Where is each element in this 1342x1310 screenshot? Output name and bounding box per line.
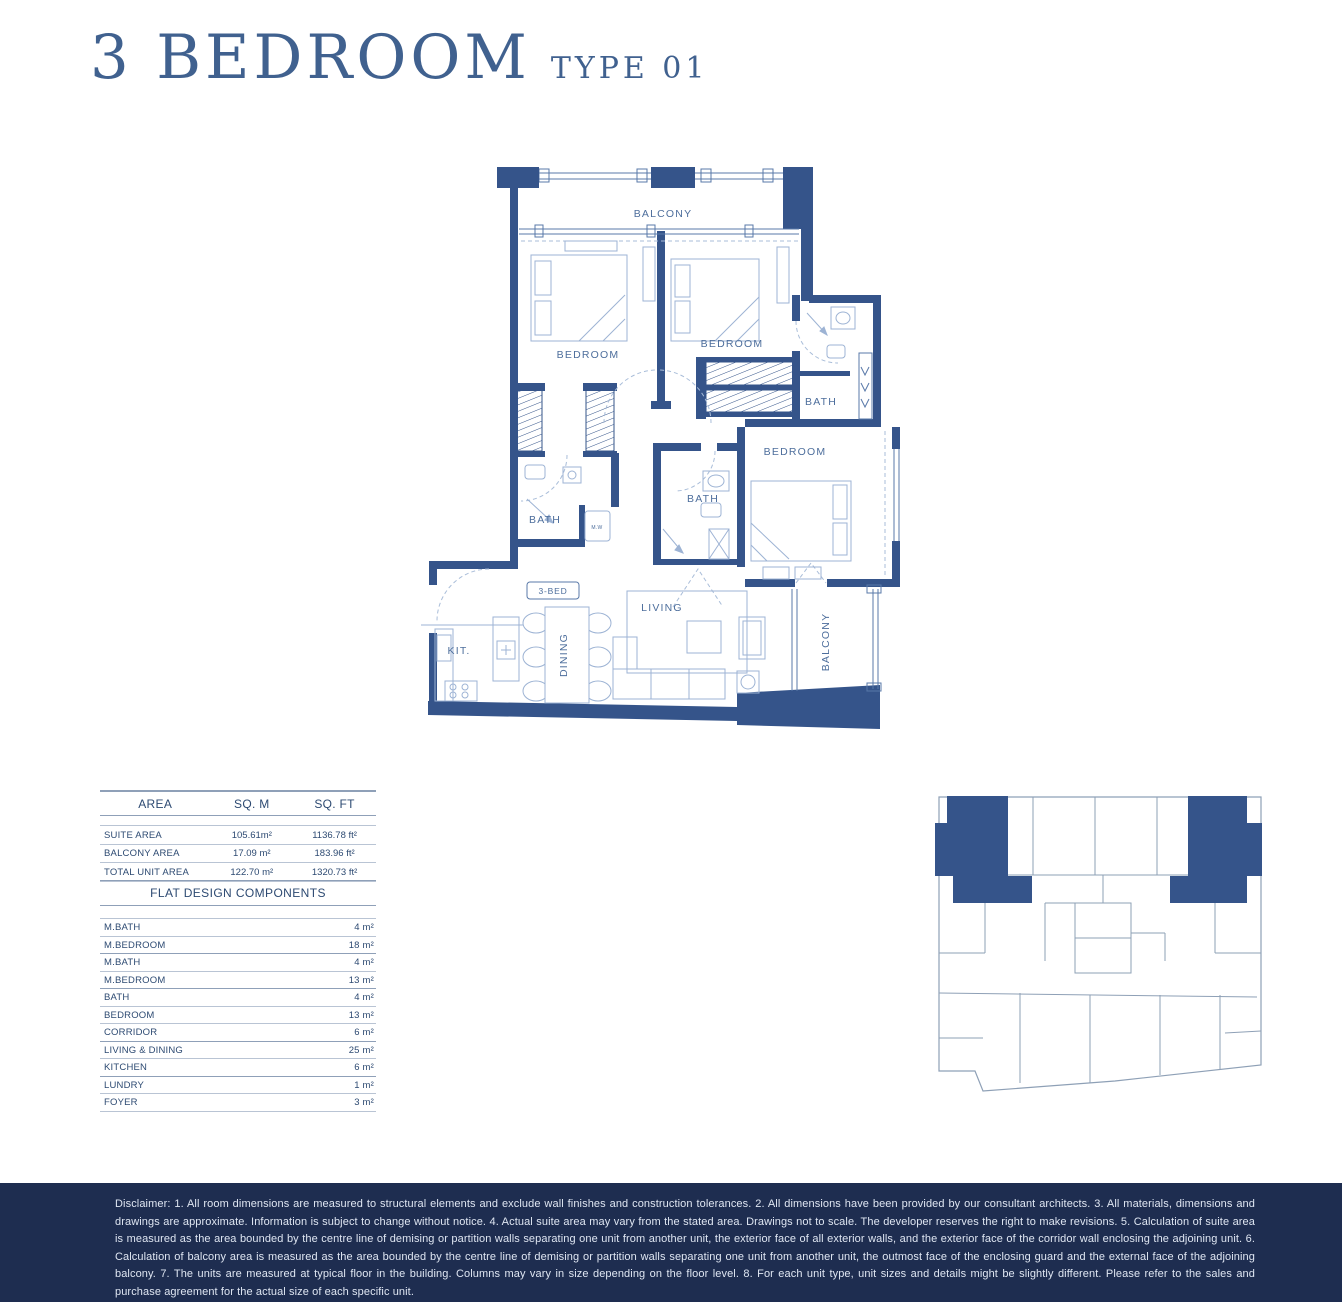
component-value: 18 m²: [349, 940, 374, 951]
component-label: CORRIDOR: [104, 1027, 157, 1038]
label-washer: M.W: [591, 525, 602, 531]
component-value: 13 m²: [349, 975, 374, 986]
key-plan: [925, 783, 1275, 1101]
unit-type-title: 3 BEDROOM: [90, 22, 531, 93]
unit-badge: 3-BED: [527, 582, 579, 599]
label-living: LIVING: [641, 602, 683, 614]
component-value: 25 m²: [349, 1045, 374, 1056]
components-table-title: FLAT DESIGN COMPONENTS: [100, 880, 376, 906]
component-row: M.BEDROOM18 m²: [100, 937, 376, 955]
component-label: LIVING & DINING: [104, 1045, 183, 1056]
page-title: 3 BEDROOMTYPE 01: [90, 22, 708, 93]
label-balcony-right: BALCONY: [820, 613, 832, 672]
component-value: 4 m²: [354, 922, 374, 933]
area-header-col2: SQ. M: [210, 797, 293, 811]
component-label: M.BEDROOM: [104, 940, 165, 951]
component-row: CORRIDOR6 m²: [100, 1024, 376, 1042]
label-balcony-top: BALCONY: [634, 208, 693, 220]
area-table: AREA SQ. M SQ. FT SUITE AREA105.61m²1136…: [100, 790, 376, 882]
component-value: 4 m²: [354, 992, 374, 1003]
component-row: BATH4 m²: [100, 989, 376, 1007]
component-row: KITCHEN6 m²: [100, 1059, 376, 1077]
area-table-cell: 17.09 m²: [210, 848, 293, 859]
area-table-rows: SUITE AREA105.61m²1136.78 ft²BALCONY ARE…: [100, 825, 376, 882]
component-row: M.BATH4 m²: [100, 919, 376, 937]
component-row: BEDROOM13 m²: [100, 1007, 376, 1025]
area-table-cell: TOTAL UNIT AREA: [100, 867, 210, 878]
floor-plan-page: 3 BEDROOMTYPE 01: [0, 0, 1342, 1310]
component-row: LIVING & DINING25 m²: [100, 1042, 376, 1060]
label-bath-left: BATH: [529, 514, 561, 526]
area-header-col1: AREA: [100, 797, 210, 811]
component-row: LUNDRY1 m²: [100, 1077, 376, 1095]
area-table-row: BALCONY AREA17.09 m²183.96 ft²: [100, 845, 376, 864]
label-bath-top-right: BATH: [805, 396, 837, 408]
component-value: 1 m²: [354, 1080, 374, 1091]
label-bedroom-right: BEDROOM: [764, 446, 827, 458]
unit-badge-label: 3-BED: [538, 586, 567, 596]
component-label: LUNDRY: [104, 1080, 144, 1091]
disclaimer-text: Disclaimer: 1. All room dimensions are m…: [115, 1196, 1255, 1301]
component-value: 3 m²: [354, 1097, 374, 1108]
component-label: M.BATH: [104, 922, 140, 933]
area-table-row: SUITE AREA105.61m²1136.78 ft²: [100, 826, 376, 845]
floor-plan-drawing: BALCONY BEDROOM BEDROOM BATH BEDROOM BAT…: [415, 155, 905, 735]
area-header-col3: SQ. FT: [293, 797, 376, 811]
label-kitchen: KIT.: [448, 645, 471, 657]
area-table-cell: BALCONY AREA: [100, 848, 210, 859]
area-table-header: AREA SQ. M SQ. FT: [100, 790, 376, 816]
components-table: FLAT DESIGN COMPONENTS M.BATH4 m²M.BEDRO…: [100, 880, 376, 1112]
component-label: KITCHEN: [104, 1062, 147, 1073]
component-value: 4 m²: [354, 957, 374, 968]
area-table-cell: 105.61m²: [210, 830, 293, 841]
component-label: M.BEDROOM: [104, 975, 165, 986]
component-value: 6 m²: [354, 1027, 374, 1038]
component-label: M.BATH: [104, 957, 140, 968]
unit-type-subtitle: TYPE 01: [551, 51, 709, 86]
label-bedroom-mid: BEDROOM: [701, 338, 764, 350]
component-row: FOYER3 m²: [100, 1094, 376, 1112]
area-table-cell: 183.96 ft²: [293, 848, 376, 859]
component-label: FOYER: [104, 1097, 138, 1108]
component-row: M.BEDROOM13 m²: [100, 972, 376, 990]
components-table-rows: M.BATH4 m²M.BEDROOM18 m²M.BATH4 m²M.BEDR…: [100, 918, 376, 1112]
area-table-cell: SUITE AREA: [100, 830, 210, 841]
area-table-cell: 1136.78 ft²: [293, 830, 376, 841]
disclaimer-band: Disclaimer: 1. All room dimensions are m…: [0, 1183, 1342, 1302]
area-table-row: TOTAL UNIT AREA122.70 m²1320.73 ft²: [100, 863, 376, 882]
furniture: [421, 241, 855, 703]
area-table-cell: 1320.73 ft²: [293, 867, 376, 878]
component-label: BEDROOM: [104, 1010, 155, 1021]
label-bedroom-left: BEDROOM: [557, 349, 620, 361]
area-table-cell: 122.70 m²: [210, 867, 293, 878]
component-value: 13 m²: [349, 1010, 374, 1021]
component-value: 6 m²: [354, 1062, 374, 1073]
component-row: M.BATH4 m²: [100, 954, 376, 972]
label-bath-center: BATH: [687, 493, 719, 505]
component-label: BATH: [104, 992, 129, 1003]
label-dining: DINING: [558, 633, 570, 677]
